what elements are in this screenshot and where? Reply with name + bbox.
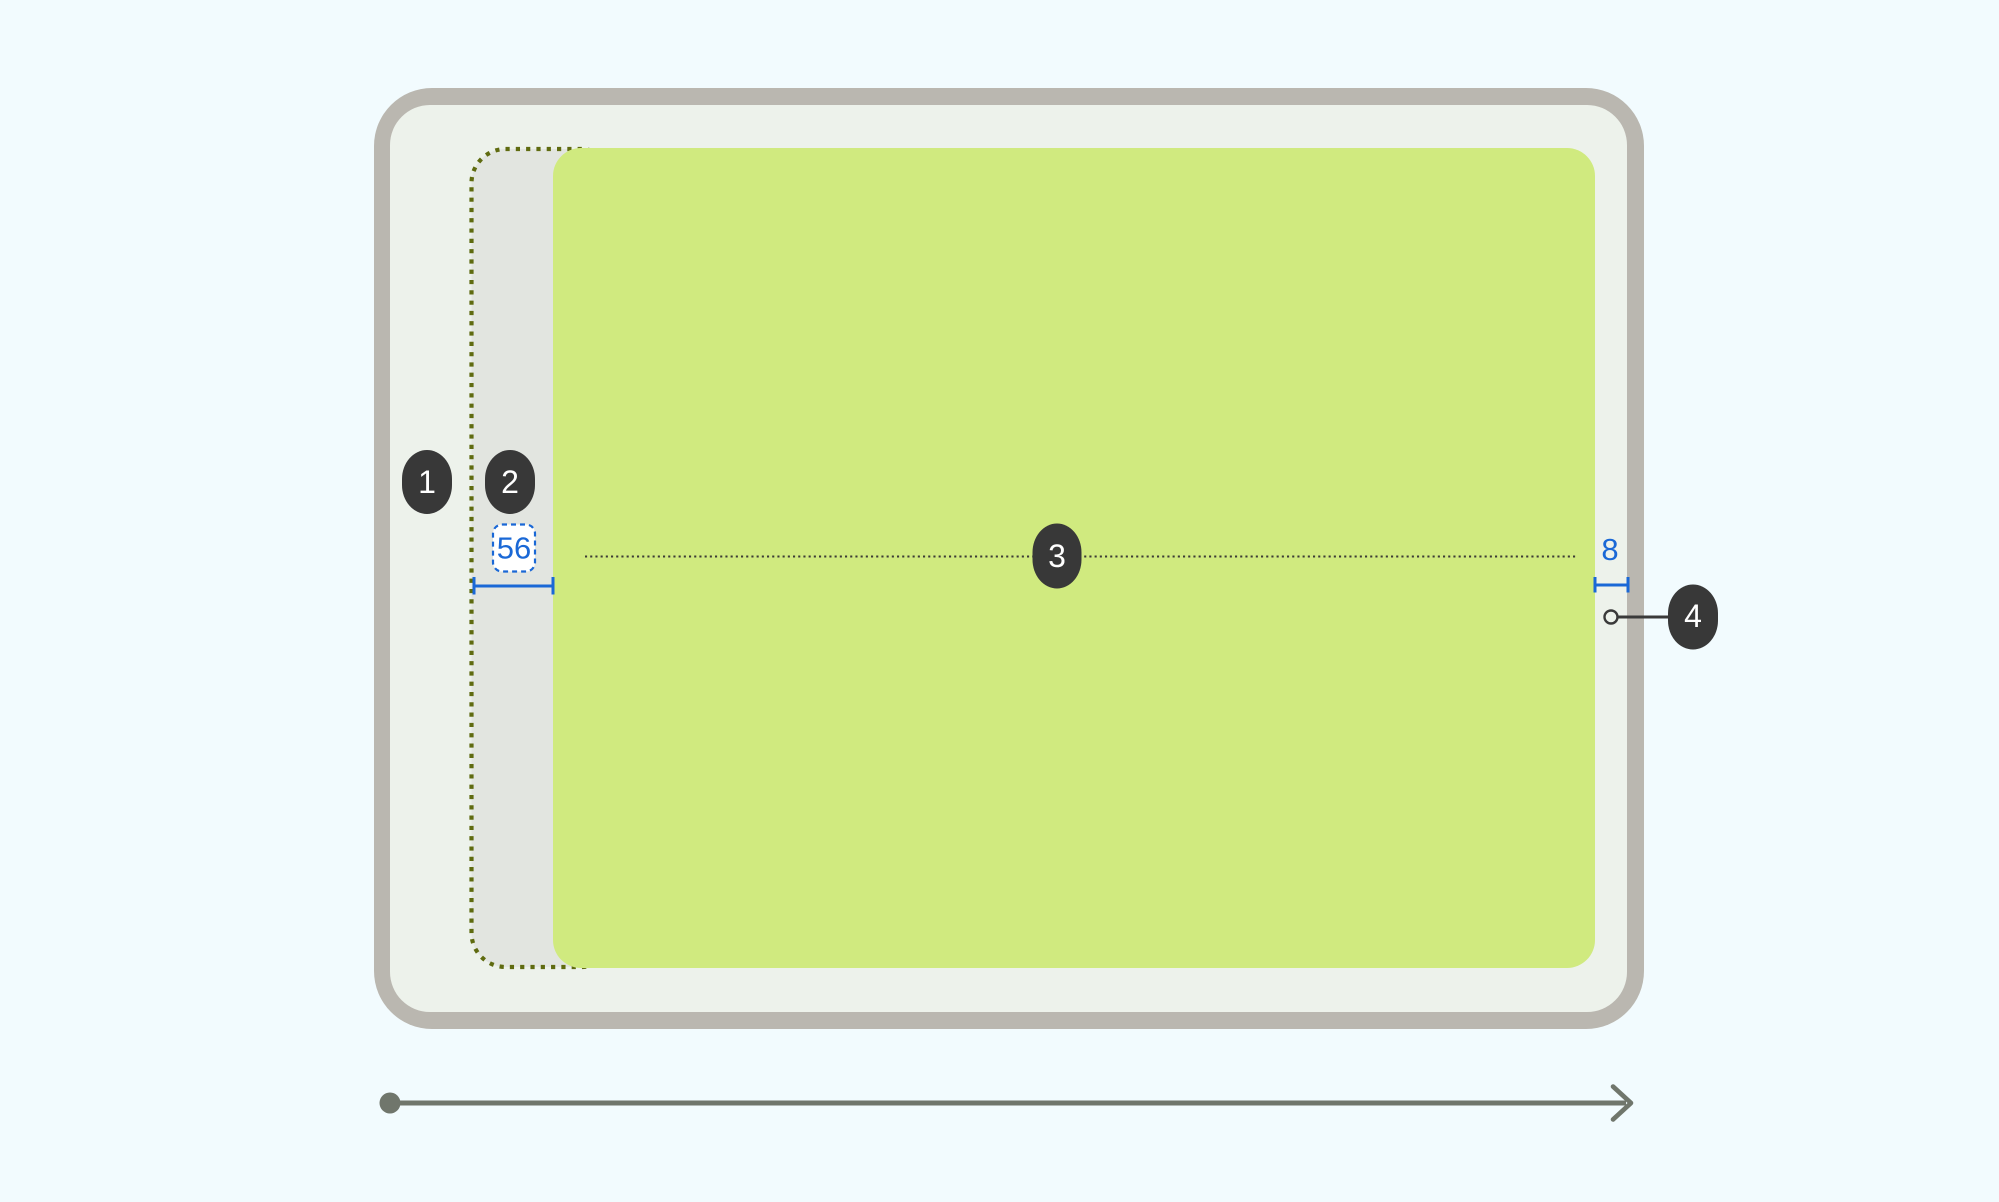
svg-text:2: 2 bbox=[501, 464, 519, 500]
svg-text:56: 56 bbox=[497, 531, 531, 566]
svg-text:8: 8 bbox=[1601, 532, 1618, 567]
svg-text:4: 4 bbox=[1684, 598, 1702, 634]
svg-text:3: 3 bbox=[1048, 538, 1066, 574]
svg-text:1: 1 bbox=[418, 464, 436, 500]
